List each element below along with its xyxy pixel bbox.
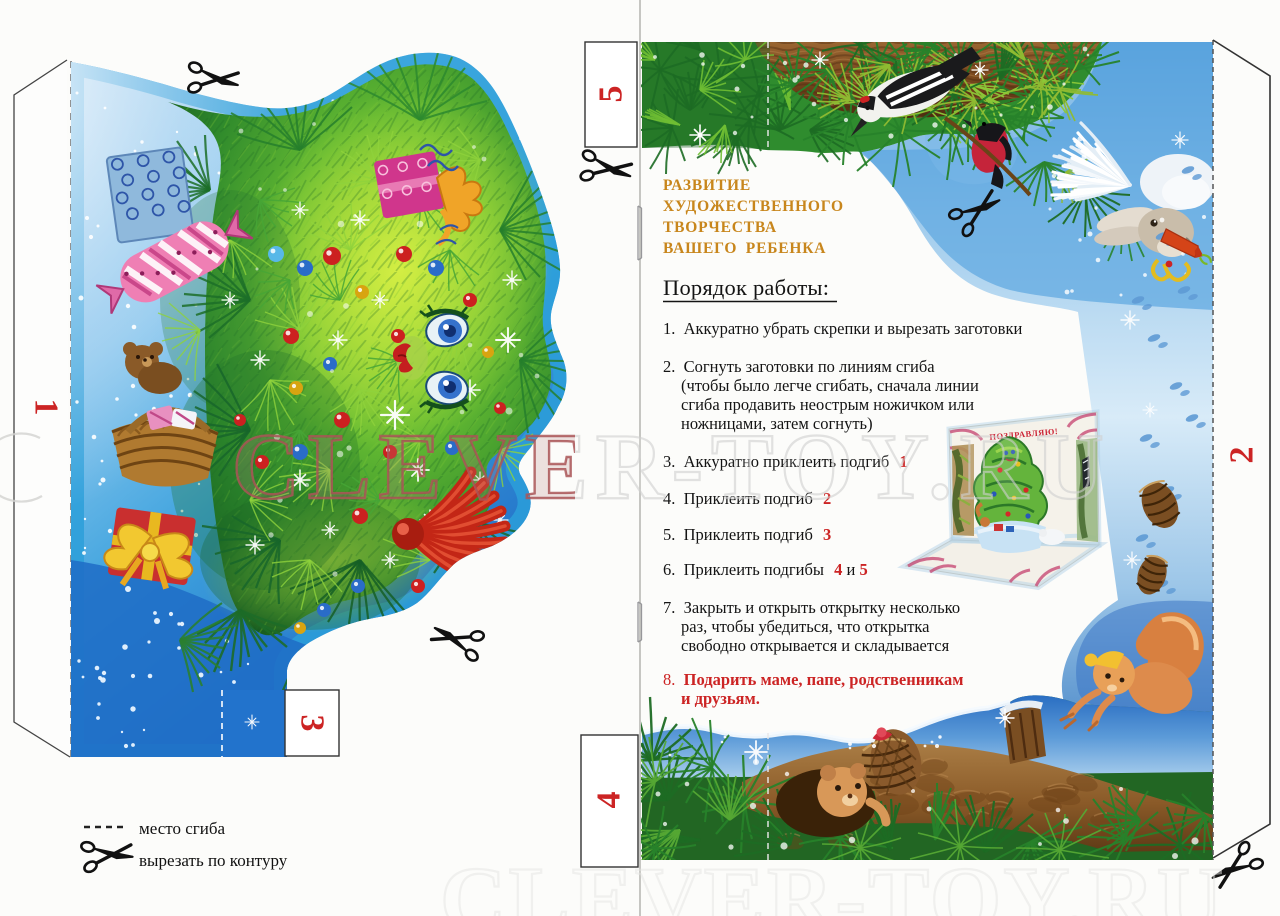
svg-text:5: 5 — [593, 86, 630, 103]
svg-text:1. Аккуратно убрать скрепки и: 1. Аккуратно убрать скрепки и вырезать з… — [663, 319, 1022, 338]
svg-text:8. Подарить маме, папе, родств: 8. Подарить маме, папе, родственникам — [663, 670, 964, 689]
svg-text:CLEVER-TOY.RU: CLEVER-TOY.RU — [440, 848, 1225, 916]
svg-text:(чтобы было легче сгибать, сна: (чтобы было легче сгибать, сначала линии — [681, 376, 979, 395]
svg-text:2: 2 — [1224, 447, 1261, 464]
svg-text:6. Приклеить подгибы 4 и 5: 6. Приклеить подгибы 4 и 5 — [663, 560, 868, 579]
svg-text:1: 1 — [28, 399, 65, 416]
svg-text:2. Согнуть заготовки по линиям: 2. Согнуть заготовки по линиям сгиба — [663, 357, 935, 376]
svg-text:сгиба продавить неострым ножич: сгиба продавить неострым ножичком или — [681, 395, 974, 414]
svg-text:и друзьям.: и друзьям. — [681, 689, 760, 708]
svg-text:3: 3 — [294, 715, 331, 732]
svg-text:РАЗВИТИЕ: РАЗВИТИЕ — [663, 177, 751, 194]
svg-text:Порядок работы:: Порядок работы: — [663, 275, 829, 300]
svg-text:7. Закрыть и открыть открытку: 7. Закрыть и открыть открытку несколько — [663, 598, 960, 617]
svg-text:ХУДОЖЕСТВЕННОГО: ХУДОЖЕСТВЕННОГО — [663, 198, 844, 215]
svg-text:вырезать по контуру: вырезать по контуру — [139, 851, 288, 870]
svg-text:раз, чтобы убедиться, что откр: раз, чтобы убедиться, что открытка — [681, 617, 930, 636]
svg-text:4: 4 — [591, 792, 628, 809]
svg-text:ТВОРЧЕСТВА: ТВОРЧЕСТВА — [663, 219, 777, 236]
svg-text:место сгиба: место сгиба — [139, 819, 225, 838]
svg-text:5. Приклеить подгиб 3: 5. Приклеить подгиб 3 — [663, 525, 831, 544]
svg-text:свободно открывается и складыв: свободно открывается и складывается — [681, 636, 950, 655]
svg-text:ВАШЕГО РЕБЕНКА: ВАШЕГО РЕБЕНКА — [663, 240, 826, 257]
